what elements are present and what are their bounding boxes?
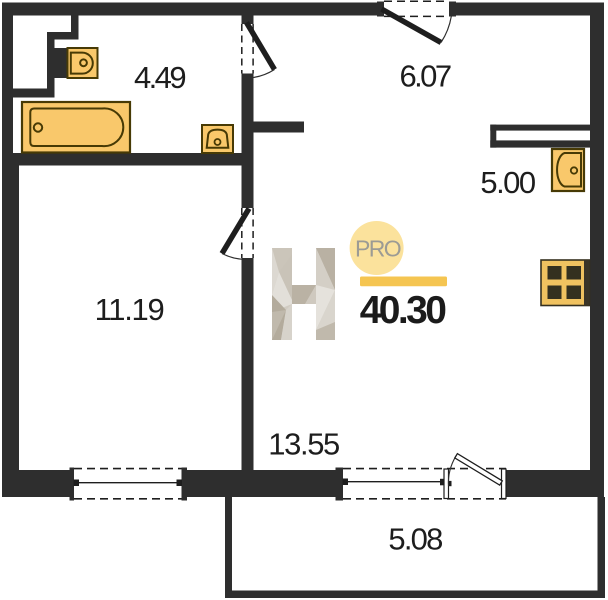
svg-text:11.19: 11.19 <box>95 292 164 327</box>
svg-text:5.08: 5.08 <box>388 521 442 556</box>
svg-text:40.30: 40.30 <box>360 289 447 332</box>
svg-text:5.00: 5.00 <box>480 165 536 200</box>
svg-text:6.07: 6.07 <box>400 58 451 93</box>
svg-text:4.49: 4.49 <box>134 60 185 95</box>
svg-text:13.55: 13.55 <box>268 426 339 461</box>
svg-text:PRO: PRO <box>355 235 401 261</box>
